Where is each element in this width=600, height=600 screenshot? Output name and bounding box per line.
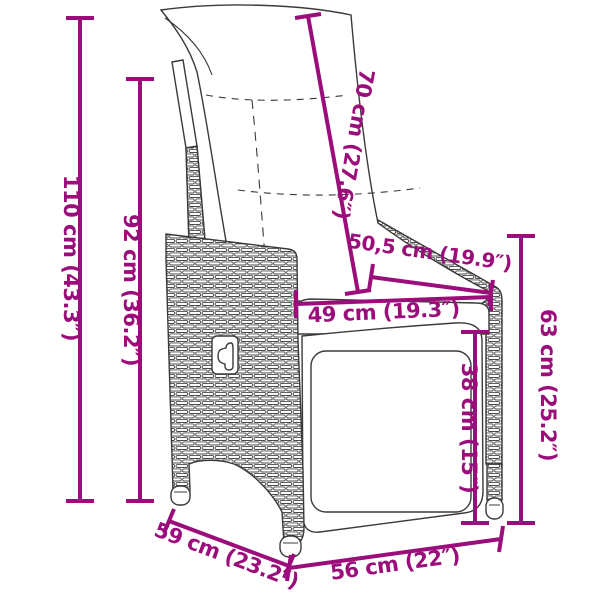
label-total-height: 110 cm (43.3″): [59, 175, 83, 341]
label-seat-height: 38 cm (15″): [457, 363, 481, 493]
label-base-width: 56 cm (22″): [329, 543, 462, 584]
dimension-armrest-height: [507, 236, 535, 523]
recline-lever-icon: [212, 336, 238, 374]
front-foot: [280, 536, 301, 557]
chair-line-art: [161, 5, 503, 557]
front-base-panel: [302, 323, 483, 532]
label-armrest-height: 63 cm (25.2″): [536, 309, 560, 461]
label-back-height: 92 cm (36.2″): [119, 214, 143, 366]
rear-right-foot: [486, 498, 503, 519]
diagram-canvas: 110 cm (43.3″) 92 cm (36.2″) 70 cm (27.6…: [0, 0, 600, 600]
label-base-depth: 59 cm (23.2″): [151, 518, 302, 594]
product-dimension-diagram: 110 cm (43.3″) 92 cm (36.2″) 70 cm (27.6…: [0, 0, 600, 600]
rear-right-leg: [487, 464, 502, 500]
rear-left-foot: [171, 486, 190, 505]
